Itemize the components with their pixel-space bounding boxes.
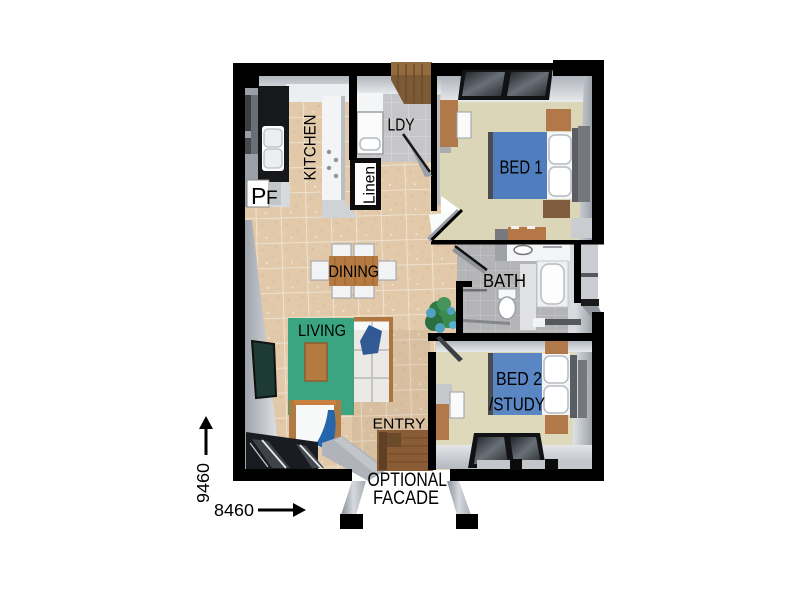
svg-text:KITCHEN: KITCHEN [301, 115, 320, 181]
svg-text:F: F [266, 188, 278, 209]
svg-text:9460: 9460 [193, 463, 213, 503]
svg-text:Linen: Linen [362, 166, 379, 204]
svg-text:ENTRY: ENTRY [373, 416, 426, 433]
svg-text:LIVING: LIVING [298, 321, 346, 340]
svg-text:BED 2: BED 2 [496, 369, 542, 389]
svg-text:FACADE: FACADE [373, 488, 439, 509]
svg-text:P: P [251, 183, 266, 209]
svg-text:BED 1: BED 1 [500, 158, 543, 178]
svg-text:8460: 8460 [214, 500, 254, 520]
svg-text:LDY: LDY [388, 115, 415, 135]
svg-text:DINING: DINING [329, 262, 380, 281]
svg-text:/STUDY: /STUDY [489, 395, 545, 415]
svg-text:BATH: BATH [483, 271, 526, 291]
